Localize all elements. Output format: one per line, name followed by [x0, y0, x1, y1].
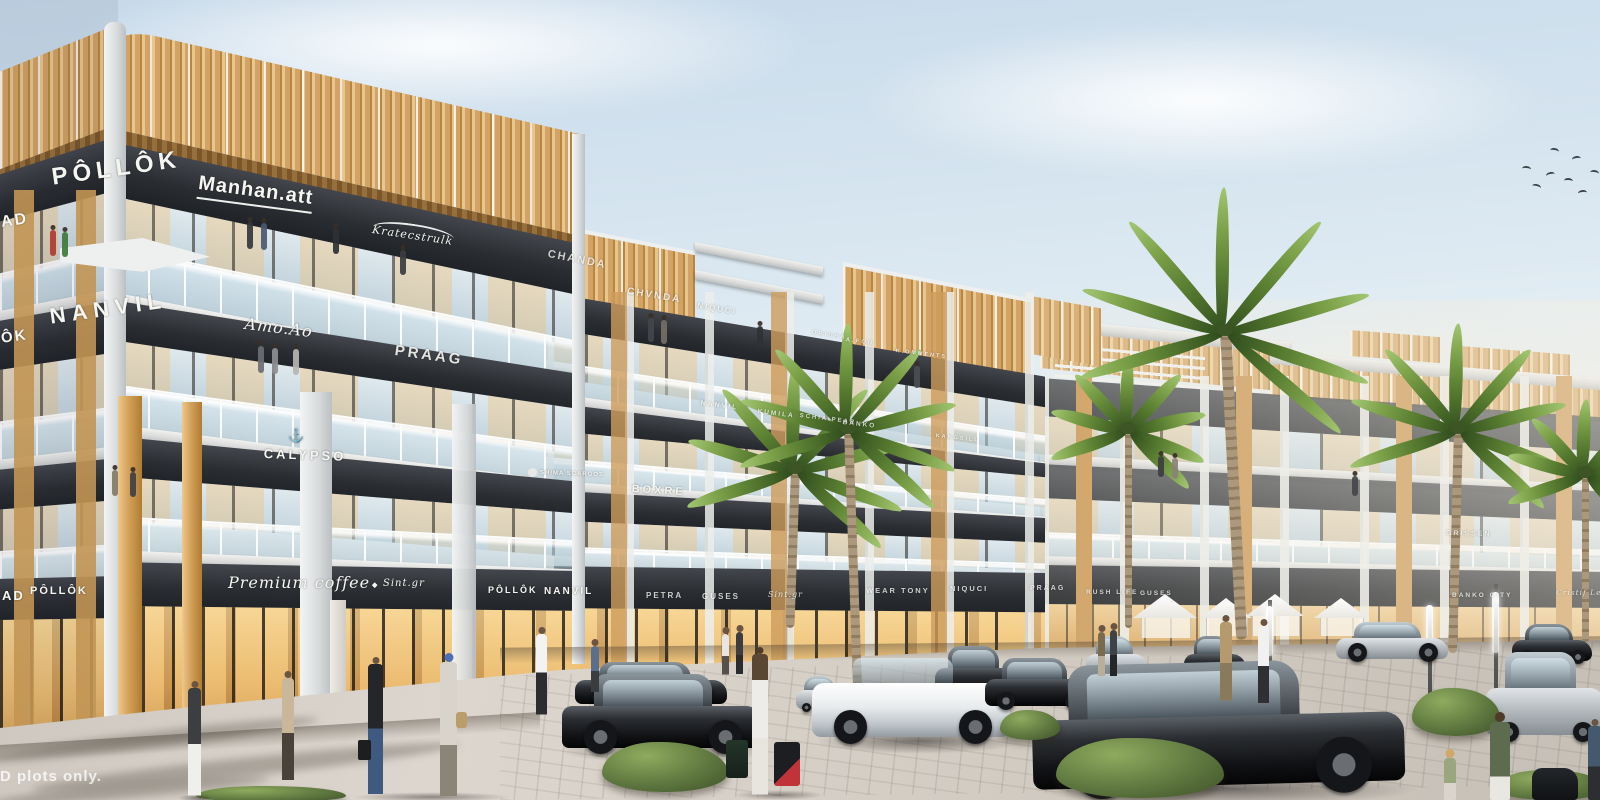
shopping-bag-green [726, 740, 748, 778]
person-head [1223, 615, 1230, 622]
concrete-pier [452, 404, 476, 704]
person-head [915, 361, 920, 366]
shop-sign-pollok-ground1: PÔLLÔK [30, 585, 88, 597]
shop-sign-petra: PETRA [646, 591, 683, 600]
palm-crown-core [1120, 422, 1136, 434]
person-man-with-tote [368, 664, 383, 798]
balcony-person [757, 326, 763, 349]
person-shopper-pair [722, 634, 729, 676]
person-head [259, 341, 264, 346]
person-man-white [1258, 626, 1269, 706]
shop-sign-ad-upper: AD [0, 210, 29, 232]
shop-sign-pollok-ground2: PÔLLÔK [488, 585, 538, 595]
anchor-icon: ⚓ [288, 428, 306, 444]
lamp-light [1492, 592, 1499, 653]
person-head [273, 343, 278, 348]
architectural-render-scene: PÔLLÔK AD NANVIL ÔK Manhan.att Kratecstr… [0, 0, 1600, 800]
balcony-person [648, 318, 654, 342]
person-head [1260, 619, 1267, 626]
person-head [1159, 451, 1164, 456]
person-head [191, 681, 198, 688]
palm-trunk [1582, 472, 1589, 642]
person-head [63, 227, 68, 232]
bird-icon [1564, 178, 1573, 185]
palm-crown-core [787, 462, 803, 474]
shop-sign-guses2: GUSES [1140, 590, 1173, 597]
person-head [592, 639, 599, 646]
balcony-person [333, 228, 339, 254]
pergola-beam [695, 242, 823, 276]
balcony-person [272, 348, 278, 374]
bird-icon [1550, 147, 1560, 154]
market-tent [1138, 594, 1192, 638]
shop-sign-sint-ground2: Sint.gr [768, 590, 803, 599]
person-woman-shopping-bags [752, 654, 768, 799]
person-head [285, 671, 292, 678]
hedge [196, 786, 346, 800]
person-shopper-pair [736, 632, 743, 676]
shop-sign-cristif: Cristif Lebleme [1556, 588, 1600, 597]
car-wheel [802, 703, 811, 712]
shop-sign-grissen: GRISSEN [1446, 530, 1492, 538]
car-silver-sedan-far [1336, 622, 1448, 662]
balcony-person [130, 472, 136, 497]
balcony-person [261, 223, 267, 250]
shop-sign-premium-coffee: Premium coffee [228, 573, 370, 592]
person-head [649, 313, 654, 318]
shopping-tote-bag [358, 740, 371, 760]
shoulder-bag [456, 712, 467, 728]
watermark-text: D plots only. [0, 768, 102, 785]
gold-pillar [182, 402, 202, 712]
car-wheel [959, 710, 993, 744]
shop-sign-nanvil-ground: NANVIL [544, 586, 593, 597]
stroller [1532, 768, 1578, 800]
cloud [850, 20, 1550, 180]
shop-sign-rush-life: RUSH LIFE [1086, 589, 1138, 596]
car-wheel [834, 710, 868, 744]
shop-sign-sint-ground1: Sint.gr [383, 578, 425, 589]
shop-sign-niquci-ground: NIQUCI [950, 584, 988, 593]
balcony-person [293, 349, 299, 375]
person-head [1446, 749, 1455, 758]
car-wheel [1315, 736, 1372, 793]
person-head [757, 647, 764, 654]
bird-icon [1545, 171, 1555, 179]
shade-overlay [0, 0, 118, 760]
person-woman-beige [282, 678, 294, 784]
person-head [1353, 471, 1358, 476]
car-white-suv [812, 652, 1010, 744]
person-head [758, 321, 763, 326]
person-head [736, 625, 743, 632]
shop-sign-pollok-side-partial: ÔK [0, 326, 29, 347]
car-wheel [997, 692, 1015, 710]
person-child-blond [1444, 758, 1456, 800]
person-head [1592, 719, 1599, 726]
shop-sign-ad-ground: AD [2, 588, 25, 603]
bird-icon [1531, 183, 1541, 191]
person-head [51, 225, 56, 230]
person-head [1098, 625, 1105, 632]
car-wheel [1419, 643, 1438, 662]
balcony-person [914, 366, 920, 388]
palm-crown-core [1577, 466, 1593, 478]
person-head [113, 465, 118, 470]
balcony-person [112, 470, 118, 496]
person-head [662, 315, 667, 320]
person-man-white-shirt [536, 634, 547, 718]
person-head [262, 218, 267, 223]
balcony-person [50, 230, 56, 256]
palm-crown-core [1450, 422, 1466, 434]
facade-edge-trim [572, 134, 585, 664]
person-woman-green-stroller [1490, 722, 1510, 800]
palm-trunk [1125, 428, 1132, 628]
person-head [401, 245, 406, 250]
shop-sign-banko-city: BANKO CITY [1452, 592, 1512, 599]
balcony-person [247, 222, 253, 249]
person-small-pair [1110, 630, 1117, 678]
bird-icon [1578, 190, 1588, 197]
birds-flock [1520, 140, 1600, 220]
person-head [538, 627, 545, 634]
person-man-tan-jacket [1220, 622, 1232, 704]
person-head [248, 217, 253, 222]
balcony-person [62, 232, 68, 257]
shop-sign-guses: GUSES [702, 592, 740, 601]
person-edge-partial [1588, 726, 1600, 800]
person-small-pair [1098, 632, 1105, 678]
shop-sign-wear-tony: WEAR TONY [866, 586, 930, 595]
balcony-person [258, 346, 264, 373]
tent-roof [1314, 598, 1368, 618]
hijab-head [444, 653, 453, 662]
person-head [722, 627, 729, 634]
gold-pillar [118, 396, 142, 726]
person-head [131, 467, 136, 472]
person-photographer [188, 688, 201, 800]
person-shadow [734, 790, 824, 800]
bird-icon [1572, 155, 1582, 162]
person-woman-blue [591, 646, 599, 694]
person-head [334, 223, 339, 228]
person-head [1173, 453, 1178, 458]
person-head [294, 344, 299, 349]
shop-sign-calypso: CALYPSO [263, 446, 346, 464]
bird-icon [1522, 166, 1532, 173]
building-corner-left-face [0, 0, 118, 760]
balcony-person [1352, 476, 1358, 496]
tent-body [1141, 618, 1191, 638]
person-head [1110, 623, 1117, 630]
sint-logo-icon: ◆ [372, 581, 379, 589]
person-woman-hijab [440, 662, 457, 800]
bird-icon [1590, 169, 1600, 176]
balcony-person [1172, 458, 1178, 479]
shima-circle-logo-icon [528, 468, 537, 477]
tent-roof [1133, 594, 1197, 618]
tent-roof [1246, 594, 1304, 616]
balcony-person [1158, 456, 1164, 477]
balcony-person [661, 320, 667, 344]
shop-sign-praag-ground: PRAAG [1030, 585, 1065, 592]
shopping-bag-red-black [774, 742, 800, 786]
balcony-person [400, 250, 406, 275]
car-wheel [584, 720, 618, 754]
person-head [1495, 712, 1505, 722]
palm-crown-core [1217, 324, 1233, 336]
person-head [372, 657, 379, 664]
